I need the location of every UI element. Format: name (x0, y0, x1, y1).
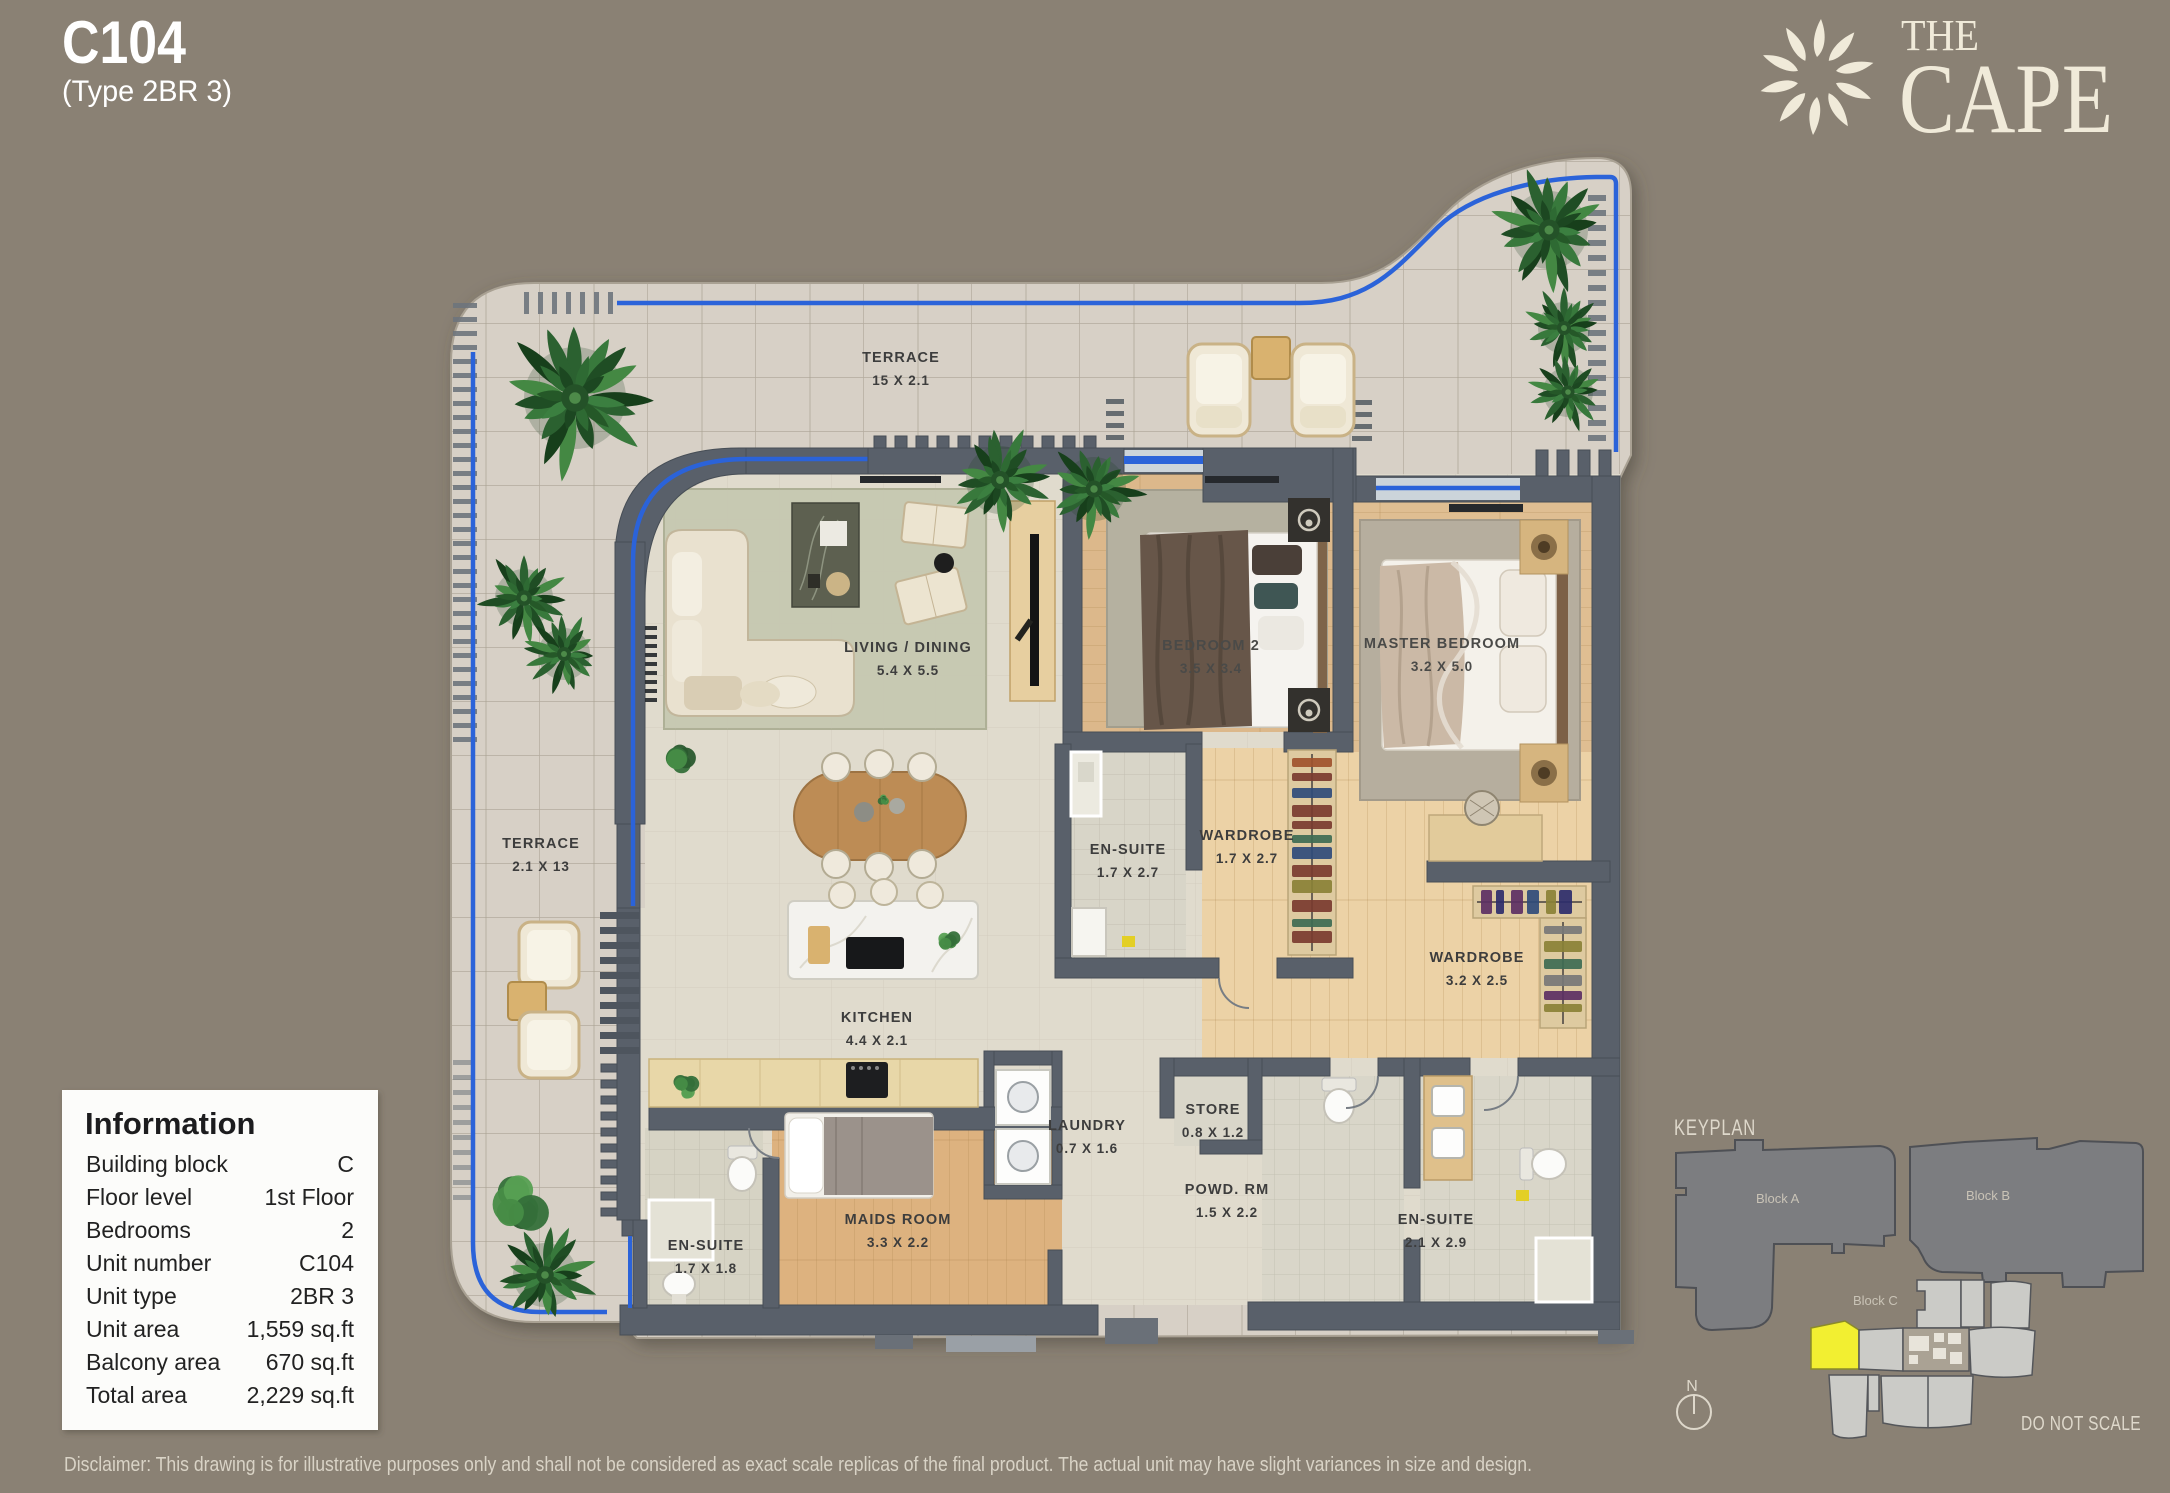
svg-text:2.1 X 2.9: 2.1 X 2.9 (1405, 1235, 1467, 1250)
svg-text:2BR 3: 2BR 3 (290, 1283, 354, 1309)
svg-text:Block B: Block B (1966, 1188, 2010, 1203)
svg-text:N: N (1686, 1378, 1698, 1395)
svg-text:EN-SUITE: EN-SUITE (668, 1238, 744, 1254)
svg-text:Floor level: Floor level (86, 1184, 192, 1210)
svg-text:CAPE: CAPE (1899, 43, 2113, 154)
svg-text:Block A: Block A (1756, 1191, 1800, 1206)
svg-text:3.2 X 2.5: 3.2 X 2.5 (1446, 973, 1508, 988)
svg-text:EN-SUITE: EN-SUITE (1398, 1212, 1474, 1228)
svg-text:WARDROBE: WARDROBE (1200, 828, 1295, 844)
svg-text:C104: C104 (62, 9, 187, 76)
svg-text:DO NOT SCALE: DO NOT SCALE (2021, 1413, 2141, 1435)
svg-text:1.7 X 2.7: 1.7 X 2.7 (1216, 851, 1278, 866)
svg-text:15 X 2.1: 15 X 2.1 (872, 373, 930, 388)
svg-text:1.7 X 1.8: 1.7 X 1.8 (675, 1261, 737, 1276)
svg-text:Unit area: Unit area (86, 1316, 180, 1342)
svg-text:POWD. RM: POWD. RM (1185, 1182, 1270, 1198)
svg-text:(Type 2BR 3): (Type 2BR 3) (62, 75, 232, 108)
svg-text:Balcony area: Balcony area (86, 1349, 220, 1375)
svg-text:MAIDS ROOM: MAIDS ROOM (845, 1212, 952, 1228)
svg-text:3.3 X 2.2: 3.3 X 2.2 (867, 1235, 929, 1250)
svg-text:TERRACE: TERRACE (502, 836, 580, 852)
svg-text:Unit type: Unit type (86, 1283, 177, 1309)
svg-text:1.7 X 2.7: 1.7 X 2.7 (1097, 865, 1159, 880)
svg-text:KITCHEN: KITCHEN (841, 1010, 913, 1026)
svg-text:1st Floor: 1st Floor (265, 1184, 355, 1210)
svg-text:C: C (337, 1151, 354, 1177)
svg-text:BEDROOM 2: BEDROOM 2 (1162, 638, 1260, 654)
svg-text:KEYPLAN: KEYPLAN (1674, 1115, 1756, 1140)
svg-text:3.5 X 3.4: 3.5 X 3.4 (1180, 661, 1242, 676)
svg-text:LAUNDRY: LAUNDRY (1048, 1118, 1126, 1134)
svg-text:Building block: Building block (86, 1151, 228, 1177)
svg-text:1.5 X 2.2: 1.5 X 2.2 (1196, 1205, 1258, 1220)
svg-text:Total area: Total area (86, 1382, 187, 1408)
svg-text:2.1 X 13: 2.1 X 13 (512, 859, 570, 874)
svg-text:C104: C104 (299, 1250, 354, 1276)
svg-text:3.2 X 5.0: 3.2 X 5.0 (1411, 659, 1473, 674)
svg-text:5.4 X 5.5: 5.4 X 5.5 (877, 663, 939, 678)
svg-text:STORE: STORE (1185, 1102, 1240, 1118)
svg-text:Block C: Block C (1853, 1293, 1898, 1308)
svg-text:EN-SUITE: EN-SUITE (1090, 842, 1166, 858)
svg-text:Bedrooms: Bedrooms (86, 1217, 191, 1243)
svg-text:0.7 X 1.6: 0.7 X 1.6 (1056, 1141, 1118, 1156)
svg-text:2: 2 (341, 1217, 354, 1243)
svg-text:670 sq.ft: 670 sq.ft (266, 1349, 355, 1375)
svg-text:MASTER BEDROOM: MASTER BEDROOM (1364, 636, 1520, 652)
svg-text:4.4 X 2.1: 4.4 X 2.1 (846, 1033, 908, 1048)
svg-text:Unit number: Unit number (86, 1250, 212, 1276)
svg-text:1,559 sq.ft: 1,559 sq.ft (247, 1316, 355, 1342)
svg-text:LIVING / DINING: LIVING / DINING (844, 640, 972, 656)
svg-text:Information: Information (85, 1106, 256, 1141)
svg-text:WARDROBE: WARDROBE (1430, 950, 1525, 966)
svg-text:TERRACE: TERRACE (862, 350, 940, 366)
svg-text:0.8 X 1.2: 0.8 X 1.2 (1182, 1125, 1244, 1140)
svg-text:Disclaimer: This drawing is fo: Disclaimer: This drawing is for illustra… (64, 1454, 1532, 1476)
svg-text:2,229 sq.ft: 2,229 sq.ft (247, 1382, 355, 1408)
